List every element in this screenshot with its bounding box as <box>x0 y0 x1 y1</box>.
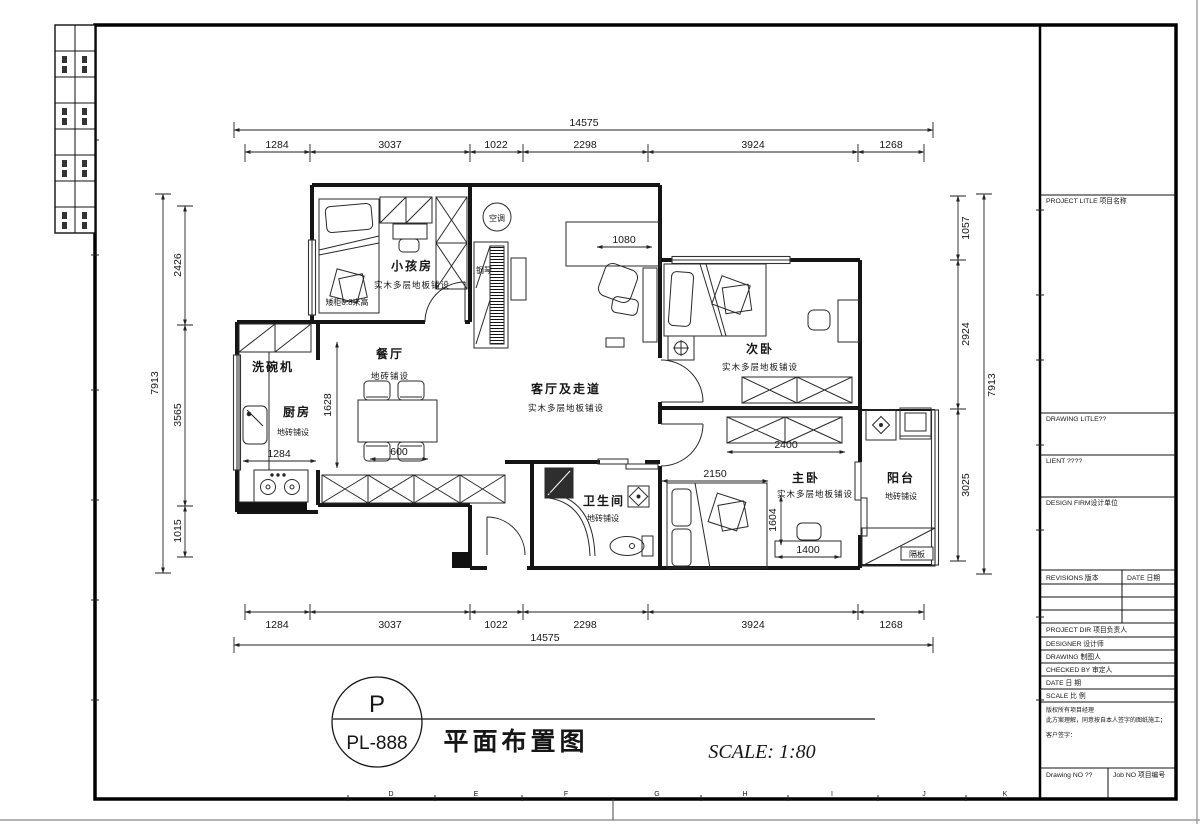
dim-bottom-4: 3924 <box>741 619 765 631</box>
copyright-line-2: 此方案理解，同意按自本人签字的图纸施工； <box>1046 716 1166 724</box>
dim-right-total: 7913 <box>986 373 998 397</box>
sheet-title-group: P PL-888 平面布置图 SCALE: 1:80 <box>332 677 875 767</box>
bathroom-sliding-door <box>598 459 628 464</box>
balcony-sliding-door <box>855 462 861 500</box>
dining-floor-label: 地砖铺设 <box>371 371 409 381</box>
grid-reference-letters: D E F G H I J K <box>388 791 1007 798</box>
kids-desk <box>393 224 427 252</box>
dim-top-total: 14575 <box>569 117 598 129</box>
title-block: PROJECT LITLE 项目名称 DRAWING LITLE?? LIENT… <box>1040 195 1176 799</box>
date-label: DATE 日 期 <box>1046 679 1081 687</box>
drawing-no-label: Drawing NO ?? <box>1046 772 1093 779</box>
signature-strip <box>55 25 95 233</box>
revisions-date-label: DATE 日期 <box>1127 574 1160 582</box>
dim-bottom-1: 3037 <box>378 619 402 631</box>
dim-top-0: 1284 <box>265 139 289 151</box>
dining-label: 餐厅 <box>376 346 404 361</box>
drawing-sheet: D E F G H I J K PROJECT <box>0 0 1200 824</box>
grid-letter: I <box>831 791 833 798</box>
project-title-label: PROJECT LITLE 项目名称 <box>1046 196 1127 205</box>
living-label: 客厅及走道 <box>530 381 601 396</box>
dim-right-2: 3025 <box>960 473 972 497</box>
wall-fills <box>237 502 470 568</box>
grid-letter: G <box>654 791 659 798</box>
kitchen-sink <box>243 406 267 444</box>
entrance-door <box>487 517 525 555</box>
dim-master-width: 2150 <box>703 468 727 480</box>
scale-label: SCALE 比 例 <box>1046 691 1086 700</box>
second-bedroom-label: 次卧 <box>746 341 774 356</box>
dim-master-desk-width: 1400 <box>796 544 820 556</box>
floor-plan-canvas: D E F G H I J K PROJECT <box>0 0 1200 824</box>
kids-bed <box>319 199 379 313</box>
dim-right-0: 1057 <box>960 216 972 240</box>
designer-label: DESIGNER 设计师 <box>1046 639 1104 648</box>
job-no-label: Job NO 项目编号 <box>1113 770 1165 779</box>
partition-label: 隔板 <box>909 549 925 559</box>
dim-top-5: 1268 <box>879 139 903 151</box>
dim-dining-depth: 1628 <box>322 393 334 417</box>
dim-living-table: 1080 <box>612 234 636 246</box>
revisions-label: REVISIONS 版本 <box>1046 573 1099 582</box>
dishwasher-label: 洗碗机 <box>252 359 294 374</box>
balcony-label: 阳台 <box>887 470 915 485</box>
dim-left-1: 3565 <box>172 403 184 427</box>
dim-bottom-5: 1268 <box>879 619 903 631</box>
master-bed <box>667 483 767 568</box>
dim-kitchen: 1284 <box>267 448 291 460</box>
sheet-code-letter: P <box>369 691 385 718</box>
master-bedroom-door <box>661 424 703 466</box>
floor-drain-symbol <box>668 336 694 360</box>
second-bedroom-wardrobe <box>742 377 852 403</box>
balcony-walls <box>860 410 935 565</box>
kids-shelf <box>380 197 432 223</box>
dim-top-1: 3037 <box>378 139 402 151</box>
dim-dining-table: 600 <box>390 446 408 458</box>
dim-left-2: 1015 <box>172 519 184 543</box>
balcony-partition-cabinet <box>862 528 935 566</box>
room-labels: 小孩房 实木多层地板铺设 矮柜0.8米高 空调 钢琴 餐厅 地砖铺设 洗碗机 厨… <box>252 213 925 559</box>
drawing-title-label: DRAWING LITLE?? <box>1046 416 1106 423</box>
checked-by-label: CHECKED BY 审定人 <box>1046 665 1113 674</box>
toilet <box>610 537 644 556</box>
kitchen-floor-label: 地砖铺设 <box>277 427 309 437</box>
dim-right-1: 2924 <box>960 322 972 346</box>
grid-letter: F <box>564 791 568 798</box>
second-bedroom-desk <box>808 300 860 342</box>
dim-left-total: 7913 <box>149 371 161 395</box>
dim-left-0: 2426 <box>172 253 184 277</box>
dim-wardrobe: 2400 <box>774 439 798 451</box>
scale-note: SCALE: 1:80 <box>708 741 815 763</box>
second-bedroom-door <box>661 360 703 402</box>
dim-top-3: 2298 <box>573 139 597 151</box>
client-sign-label: 客户签字： <box>1046 731 1076 739</box>
grid-letter: H <box>742 791 747 798</box>
kids-room-floor-label: 实木多层地板铺设 <box>374 280 450 290</box>
client-label: LIENT ???? <box>1046 458 1082 465</box>
grid-letter: K <box>1003 791 1008 798</box>
master-bedroom-label: 主卧 <box>792 470 820 485</box>
dim-bottom-2: 1022 <box>484 619 508 631</box>
grid-letter: J <box>922 791 926 798</box>
bathroom-floor-label: 地砖铺设 <box>587 513 619 523</box>
washing-machine <box>866 410 896 440</box>
dim-master-desk-depth: 1604 <box>767 508 779 532</box>
bathroom-label: 卫生间 <box>583 493 625 508</box>
ac-label: 空调 <box>489 213 505 223</box>
piano-label: 钢琴 <box>476 265 492 275</box>
balcony-basin <box>900 408 931 439</box>
balcony-floor-label: 地砖铺设 <box>885 491 917 501</box>
living-floor-label: 实木多层地板铺设 <box>528 403 604 413</box>
dim-bottom-total: 14575 <box>530 632 559 644</box>
bathroom-fixtures <box>545 468 653 556</box>
kitchen-label: 厨房 <box>283 404 311 419</box>
dim-bottom-0: 1284 <box>265 619 289 631</box>
grid-letter: E <box>474 791 479 798</box>
low-cabinet-label: 矮柜0.8米高 <box>325 297 368 307</box>
design-firm-label: DESIGN FIRM设计单位 <box>1046 498 1118 507</box>
hallway-cabinets <box>322 475 505 503</box>
grid-letter: D <box>388 791 393 798</box>
second-bedroom-floor-label: 实木多层地板铺设 <box>722 362 798 372</box>
dim-bottom-3: 2298 <box>573 619 597 631</box>
sheet-title: 平面布置图 <box>443 727 588 756</box>
kids-room-label: 小孩房 <box>391 258 433 273</box>
dim-top-2: 1022 <box>484 139 508 151</box>
project-dir-label: PROJECT DIR 项目负责人 <box>1046 625 1127 634</box>
drawing-by-label: DRAWING 制图人 <box>1046 652 1101 661</box>
kids-wardrobe <box>436 197 467 289</box>
master-bedroom-floor-label: 实木多层地板铺设 <box>777 489 853 499</box>
copyright-line-1: 版权所有项目经理 <box>1046 706 1094 714</box>
sheet-number: PL-888 <box>346 733 407 754</box>
dim-top-4: 3924 <box>741 139 765 151</box>
second-bedroom-bed <box>664 264 766 336</box>
piano <box>474 242 526 348</box>
